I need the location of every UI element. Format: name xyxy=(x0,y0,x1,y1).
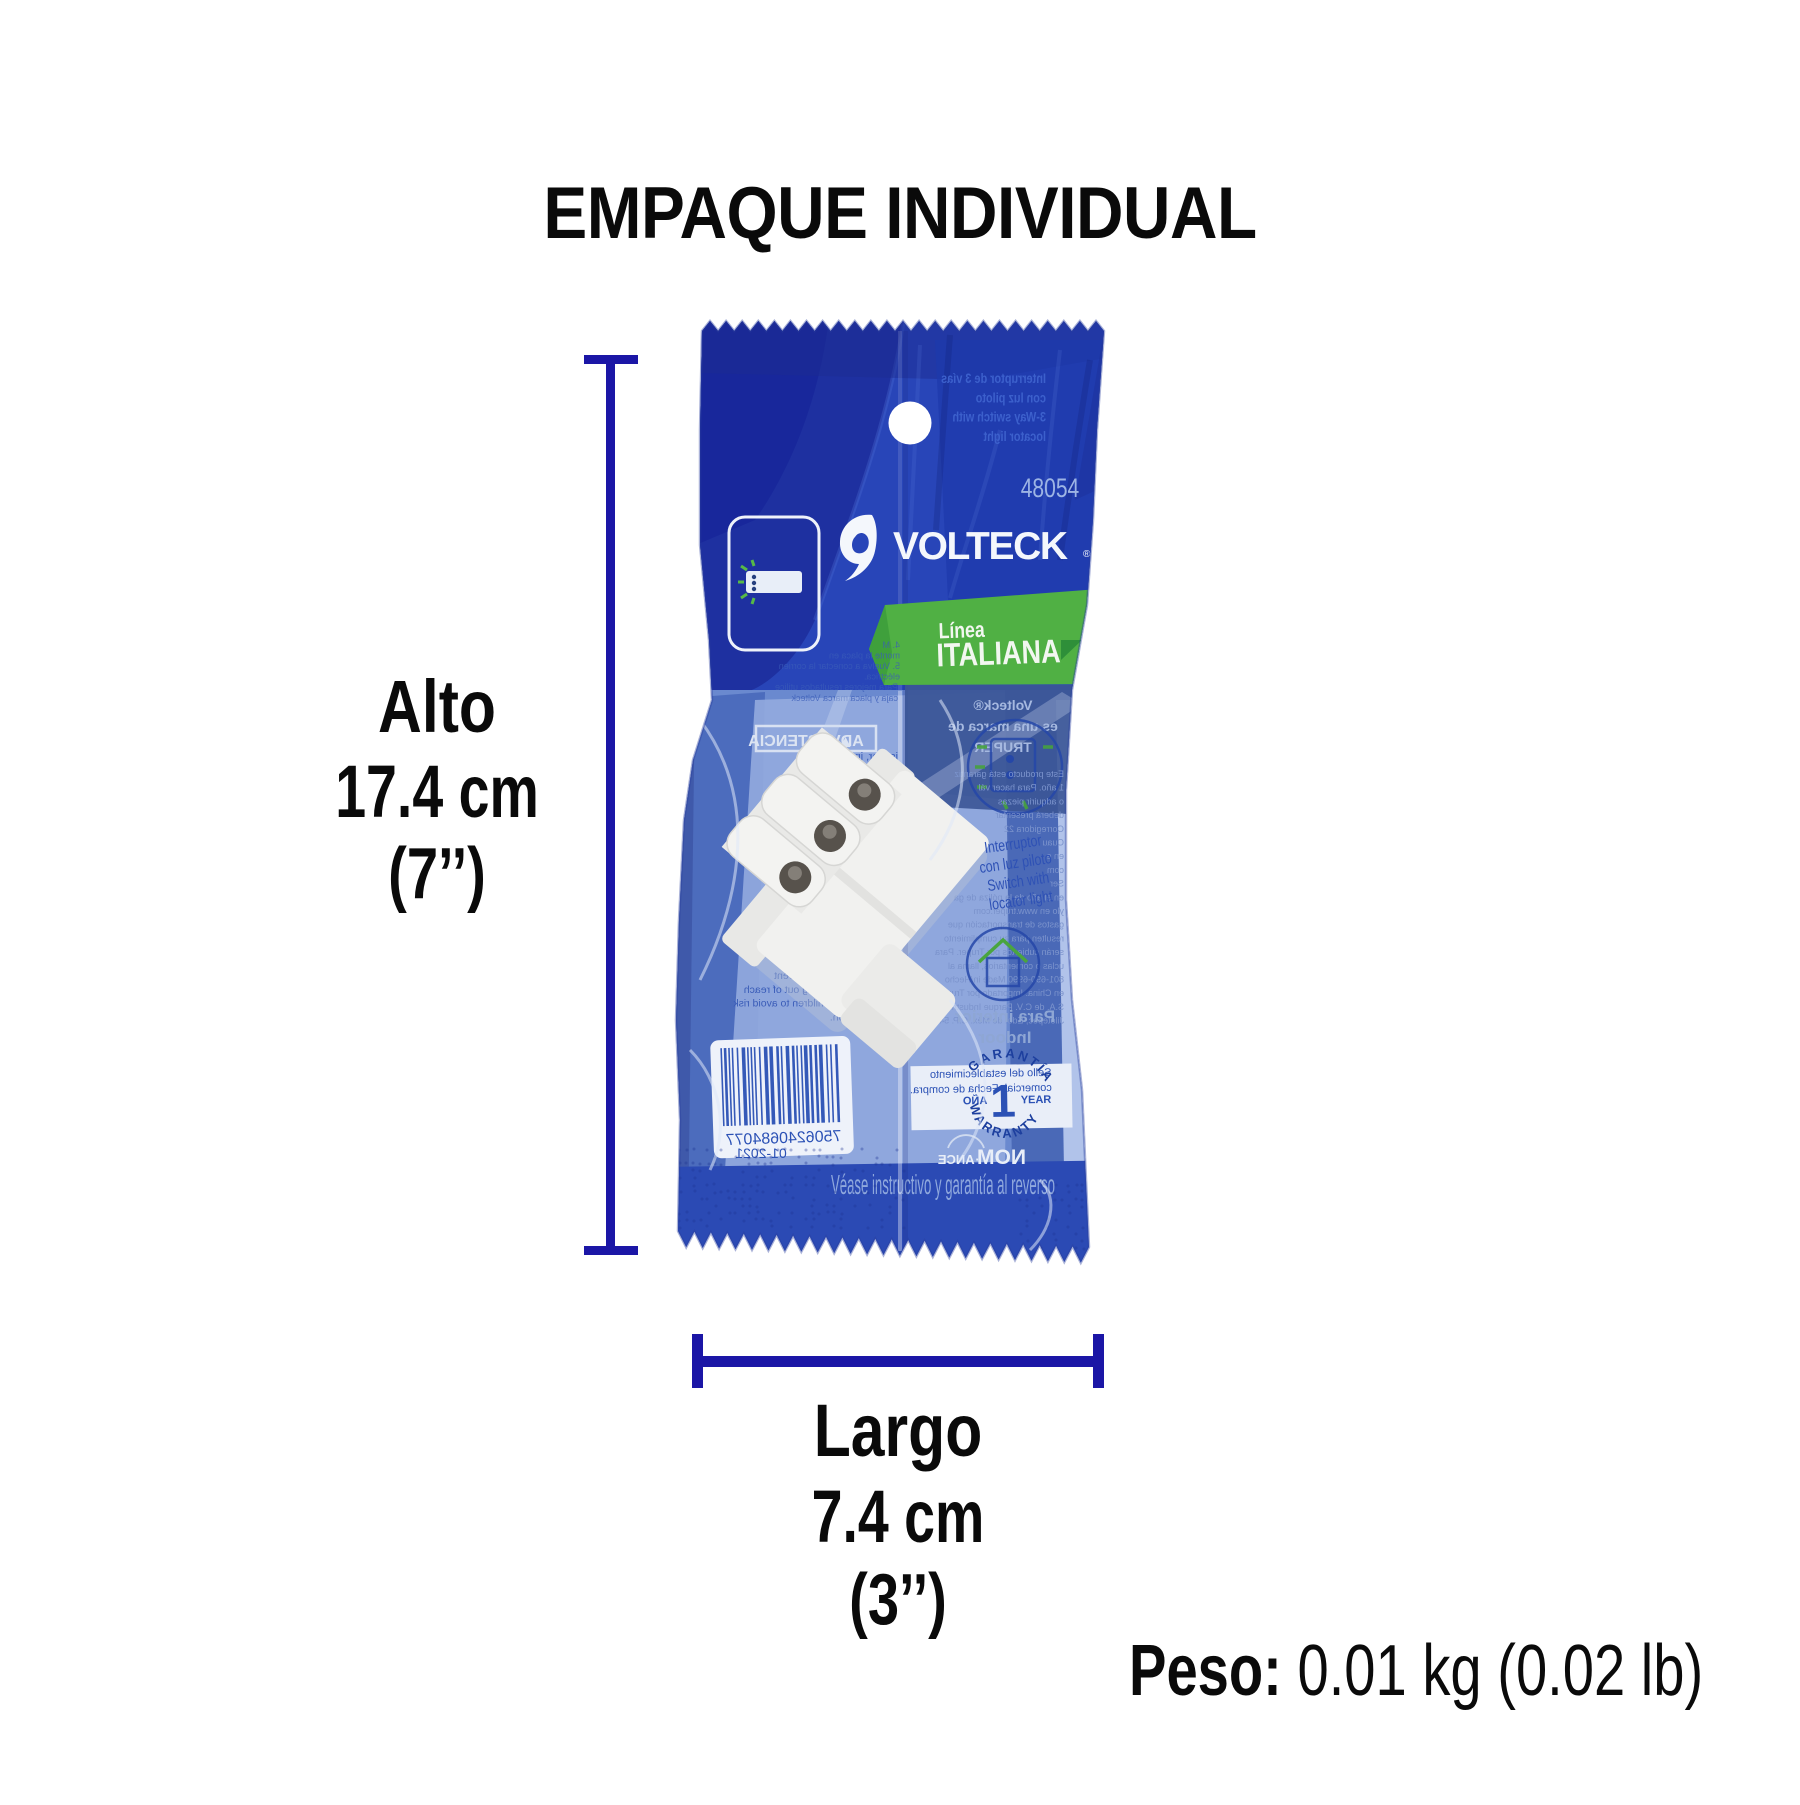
svg-text:Para interior: Para interior xyxy=(955,1007,1056,1026)
svg-text:Interruptor de 3 vías: Interruptor de 3 vías xyxy=(941,371,1046,387)
svg-text:serán cubiertos por Truper. Pa: serán cubiertos por Truper. Para xyxy=(935,947,1064,957)
svg-text:Alto: Alto xyxy=(378,666,496,748)
svg-text:Indoor: Indoor xyxy=(978,1028,1031,1047)
svg-text:5. Vuelva a conectar la corri: 5. Vuelva a conectar la corrien xyxy=(779,661,900,671)
svg-text:(7’’): (7’’) xyxy=(388,833,486,913)
svg-text:(3’’): (3’’) xyxy=(849,1559,947,1639)
svg-text:Véase instructivo y garantía a: Véase instructivo y garantía al reverso xyxy=(831,1169,1055,1200)
svg-text:YEAR: YEAR xyxy=(1021,1094,1052,1107)
svg-text:ITALIANA: ITALIANA xyxy=(936,632,1061,673)
svg-text:Largo: Largo xyxy=(814,1390,983,1472)
svg-text:801-690-6990 Made in/Hecho: 801-690-6990 Made in/Hecho xyxy=(945,975,1064,985)
svg-text:01-2021: 01-2021 xyxy=(735,1145,787,1161)
svg-text:Para mejores resultados utilic: Para mejores resultados utilice xyxy=(775,682,898,692)
svg-text:1 año. Para hacer vál: 1 año. Para hacer vál xyxy=(978,783,1064,793)
svg-text:monte la placa en: monte la placa en xyxy=(829,651,900,661)
svg-text:48054: 48054 xyxy=(1021,474,1080,504)
svg-text:17.4 cm: 17.4 cm xyxy=(335,750,539,833)
svg-text:eléctrica.: eléctrica. xyxy=(864,672,900,682)
svg-text:Ser: Ser xyxy=(1050,879,1064,889)
svg-text:locator light: locator light xyxy=(983,429,1046,445)
svg-text:EMPAQUE INDIVIDUAL: EMPAQUE INDIVIDUAL xyxy=(543,172,1256,254)
svg-text:Peso: 0.01 kg (0.02 lb): Peso: 0.01 kg (0.02 lb) xyxy=(1129,1630,1703,1710)
svg-text:con luz piloto: con luz piloto xyxy=(975,390,1046,406)
svg-text:4. M: 4. M xyxy=(882,640,900,650)
svg-text:Cuau: Cuau xyxy=(1042,838,1064,848)
svg-text:3-Way switch with: 3-Way switch with xyxy=(952,409,1046,425)
svg-text:·ANCE: ·ANCE xyxy=(938,1152,979,1167)
svg-text:deberá presentar: deberá presentar xyxy=(995,810,1064,820)
svg-text:uclas o comentarios, llama al: uclas o comentarios, llama al xyxy=(948,961,1064,971)
svg-text:7.4 cm: 7.4 cm xyxy=(812,1475,985,1558)
svg-text:o adquirir piezas: o adquirir piezas xyxy=(997,796,1064,806)
svg-text:1: 1 xyxy=(990,1074,1016,1126)
svg-text:NOM: NOM xyxy=(977,1146,1026,1169)
svg-text:en China. Importado por Truper: en China. Importado por Truper xyxy=(938,988,1064,998)
svg-text:Volteck®: Volteck® xyxy=(973,697,1033,713)
svg-text:VOLTECK: VOLTECK xyxy=(893,525,1068,568)
svg-text:Este producto está garantiz: Este producto está garantiz xyxy=(954,769,1064,779)
